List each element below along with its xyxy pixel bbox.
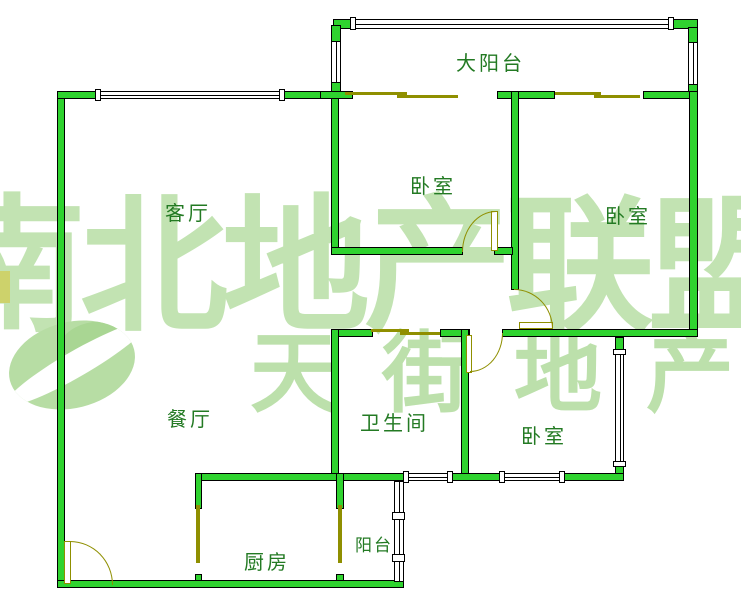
wall: [497, 91, 555, 99]
room-label-balcony: 阳台: [355, 531, 393, 556]
wall: [331, 25, 341, 42]
window: [502, 473, 562, 481]
wall: [195, 473, 406, 481]
window-cap: [95, 89, 101, 101]
window-cap: [279, 89, 285, 101]
window: [331, 41, 341, 83]
sliding-door-line: [397, 95, 458, 98]
window: [394, 481, 404, 582]
window-cap: [350, 17, 356, 30]
door-leaf: [196, 505, 200, 563]
window-cap: [613, 349, 626, 355]
wall: [450, 473, 502, 481]
wall: [331, 247, 463, 255]
window-cap: [668, 17, 674, 30]
window-cap: [499, 471, 505, 483]
wall: [57, 91, 99, 99]
room-label-bedroom-lower: 卧室: [521, 420, 567, 449]
room-label-bedroom-top: 卧室: [410, 170, 456, 199]
wall: [336, 473, 344, 509]
room-label-large-balcony: 大阳台: [456, 47, 525, 76]
entry-door-arc: [70, 541, 113, 585]
window: [615, 352, 624, 464]
wall: [57, 91, 65, 588]
wall: [331, 91, 339, 255]
wall: [331, 329, 339, 481]
window-cap: [392, 554, 405, 562]
window-cap: [447, 471, 453, 483]
wall: [562, 473, 624, 481]
room-label-bedroom-right: 卧室: [605, 200, 651, 229]
window-cap: [403, 471, 409, 483]
window-cap: [559, 471, 565, 483]
room-label-living-room: 客厅: [165, 197, 211, 226]
watermark-yellow-fragment: [0, 271, 10, 303]
wall: [689, 91, 698, 337]
room-label-dining-room: 餐厅: [167, 403, 213, 432]
window: [99, 91, 283, 99]
sliding-door-line: [400, 332, 440, 335]
sliding-door-line: [594, 95, 640, 98]
watermark-text-row2: 天街地产: [250, 303, 741, 430]
window: [406, 473, 450, 481]
wall: [688, 27, 698, 43]
window: [688, 42, 698, 85]
window: [353, 19, 673, 29]
wall: [511, 91, 519, 290]
window-cap: [392, 512, 405, 520]
wall: [502, 329, 698, 337]
window-cap: [613, 461, 626, 467]
floor-plan: 南北地产联盟 天街地产: [0, 0, 741, 597]
room-label-kitchen: 厨房: [244, 546, 290, 575]
room-label-bathroom: 卫生间: [360, 407, 429, 436]
wall: [195, 473, 202, 509]
door-leaf: [338, 505, 342, 563]
